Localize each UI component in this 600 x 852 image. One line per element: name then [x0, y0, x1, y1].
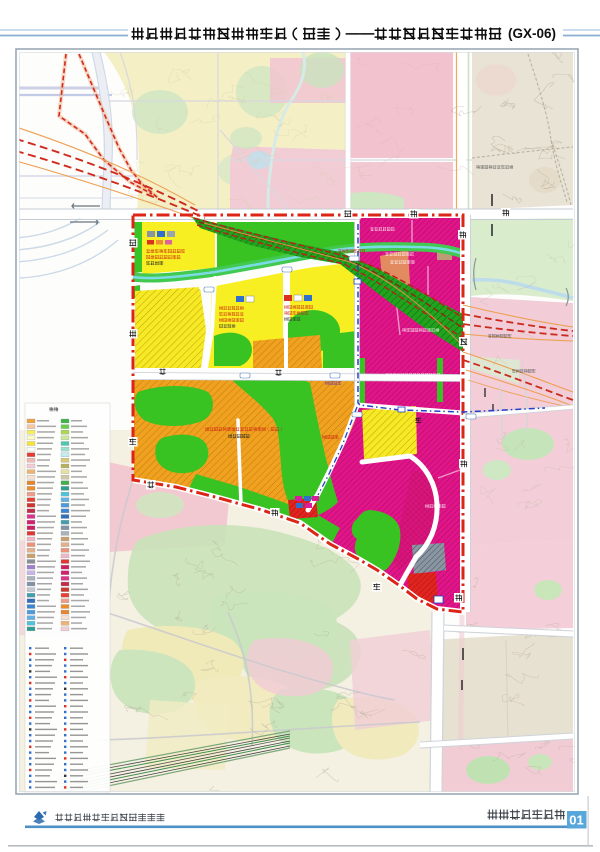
- svg-text:(GX-06): (GX-06): [508, 26, 556, 41]
- svg-text:01: 01: [569, 813, 583, 828]
